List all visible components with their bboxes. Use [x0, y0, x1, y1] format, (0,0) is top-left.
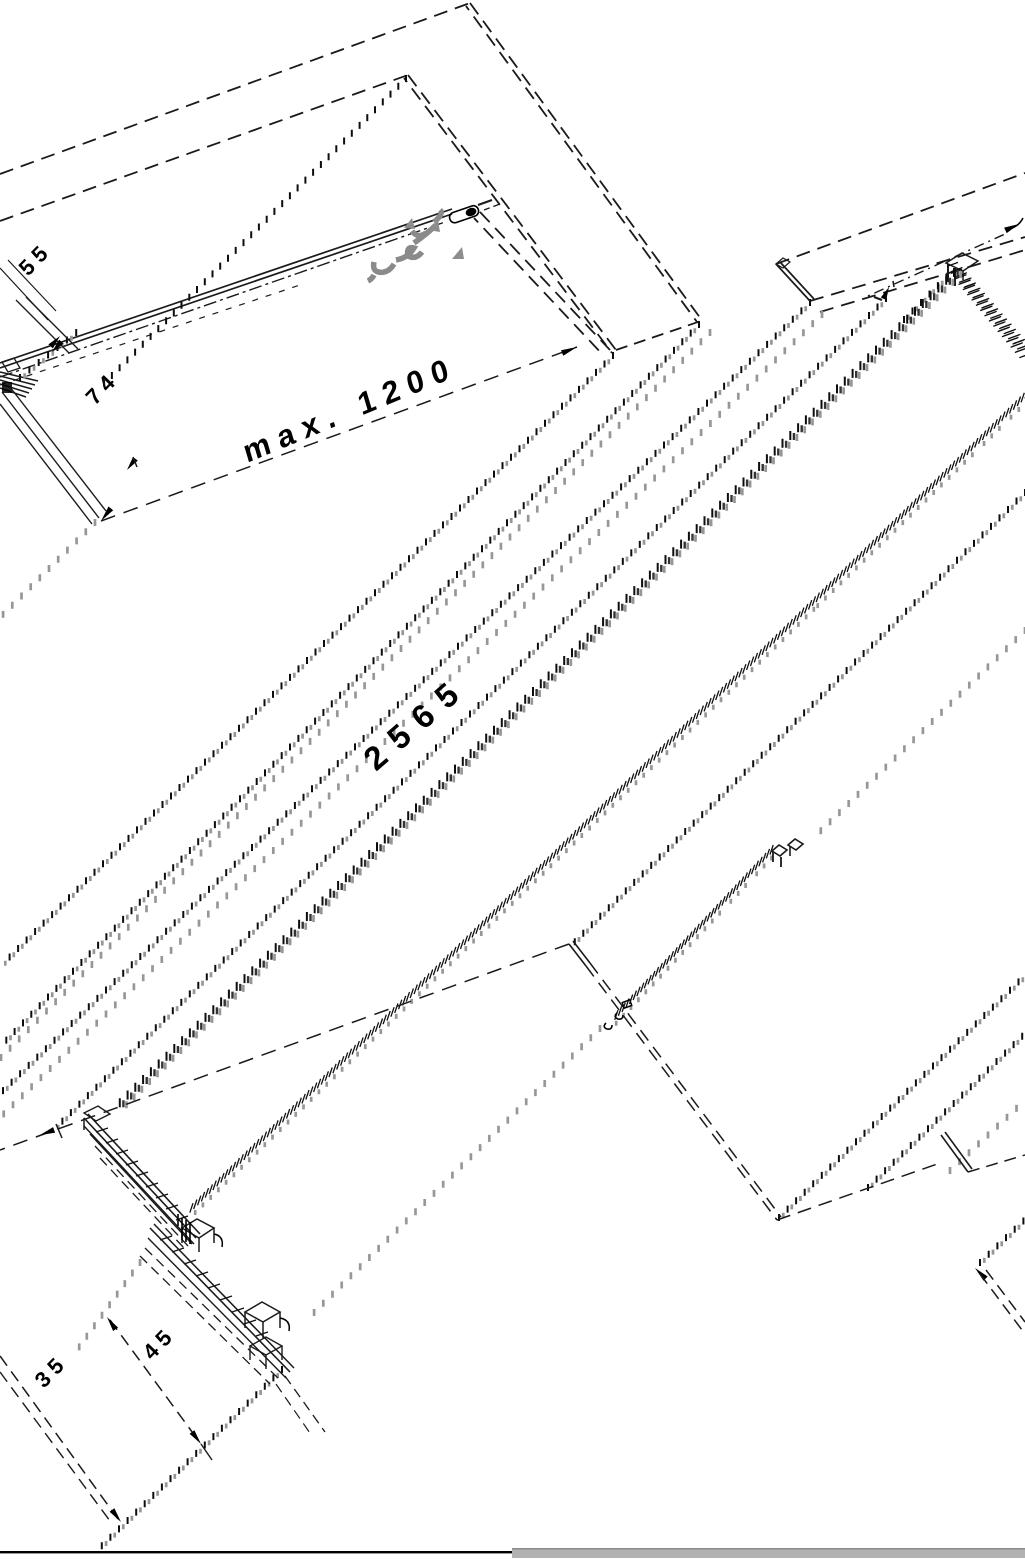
svg-text:74: 74	[81, 366, 124, 410]
svg-text:45: 45	[138, 1321, 181, 1365]
svg-text:35: 35	[30, 1349, 73, 1393]
svg-text:max. 1200: max. 1200	[239, 348, 461, 469]
svg-text:55: 55	[14, 237, 57, 281]
svg-text:2565: 2565	[356, 667, 475, 777]
